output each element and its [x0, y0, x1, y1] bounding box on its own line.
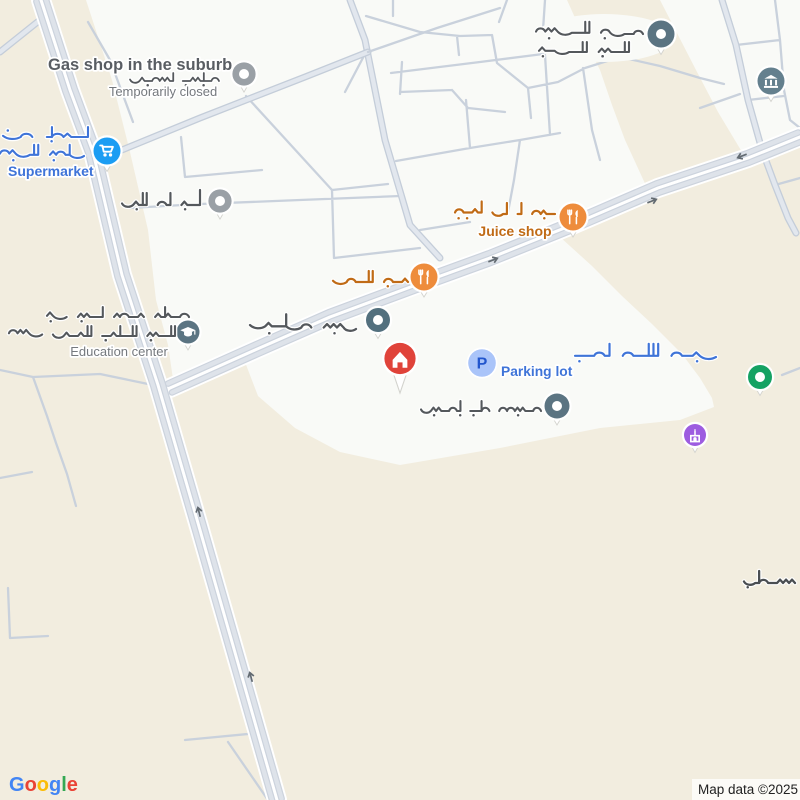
- svg-text:P: P: [477, 356, 488, 373]
- svg-text:Education center: Education center: [70, 344, 168, 359]
- svg-text:Supermarket: Supermarket: [8, 163, 94, 179]
- svg-text:Gas shop in the suburb: Gas shop in the suburb: [48, 56, 232, 74]
- svg-text:Google: Google: [9, 774, 78, 796]
- svg-text:Temporarily closed: Temporarily closed: [109, 84, 217, 99]
- svg-text:Parking lot: Parking lot: [501, 364, 573, 379]
- svg-text:Map data ©2025: Map data ©2025: [698, 782, 798, 797]
- svg-text:Juice shop: Juice shop: [478, 223, 551, 239]
